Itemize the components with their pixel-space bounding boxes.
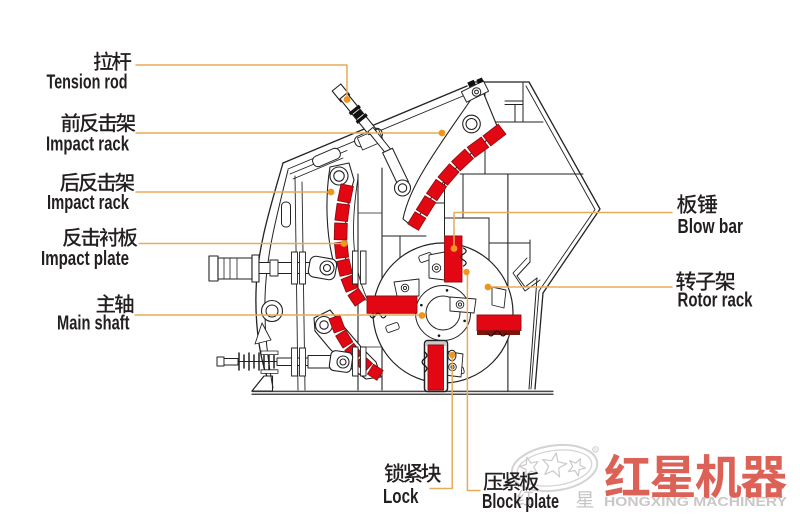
svg-text:Impact rack: Impact rack — [46, 134, 130, 156]
svg-text:Rotor rack: Rotor rack — [678, 290, 754, 312]
svg-text:HONGXING MACHINERY: HONGXING MACHINERY — [604, 495, 788, 509]
svg-text:R: R — [594, 448, 597, 453]
svg-text:Blow bar: Blow bar — [678, 216, 744, 238]
svg-text:Lock: Lock — [383, 486, 419, 508]
svg-text:Impact plate: Impact plate — [41, 248, 129, 270]
svg-text:Tension rod: Tension rod — [47, 72, 128, 94]
svg-text:Main shaft: Main shaft — [57, 313, 130, 335]
svg-text:Impact rack: Impact rack — [47, 192, 130, 214]
svg-text:Block plate: Block plate — [482, 491, 559, 513]
